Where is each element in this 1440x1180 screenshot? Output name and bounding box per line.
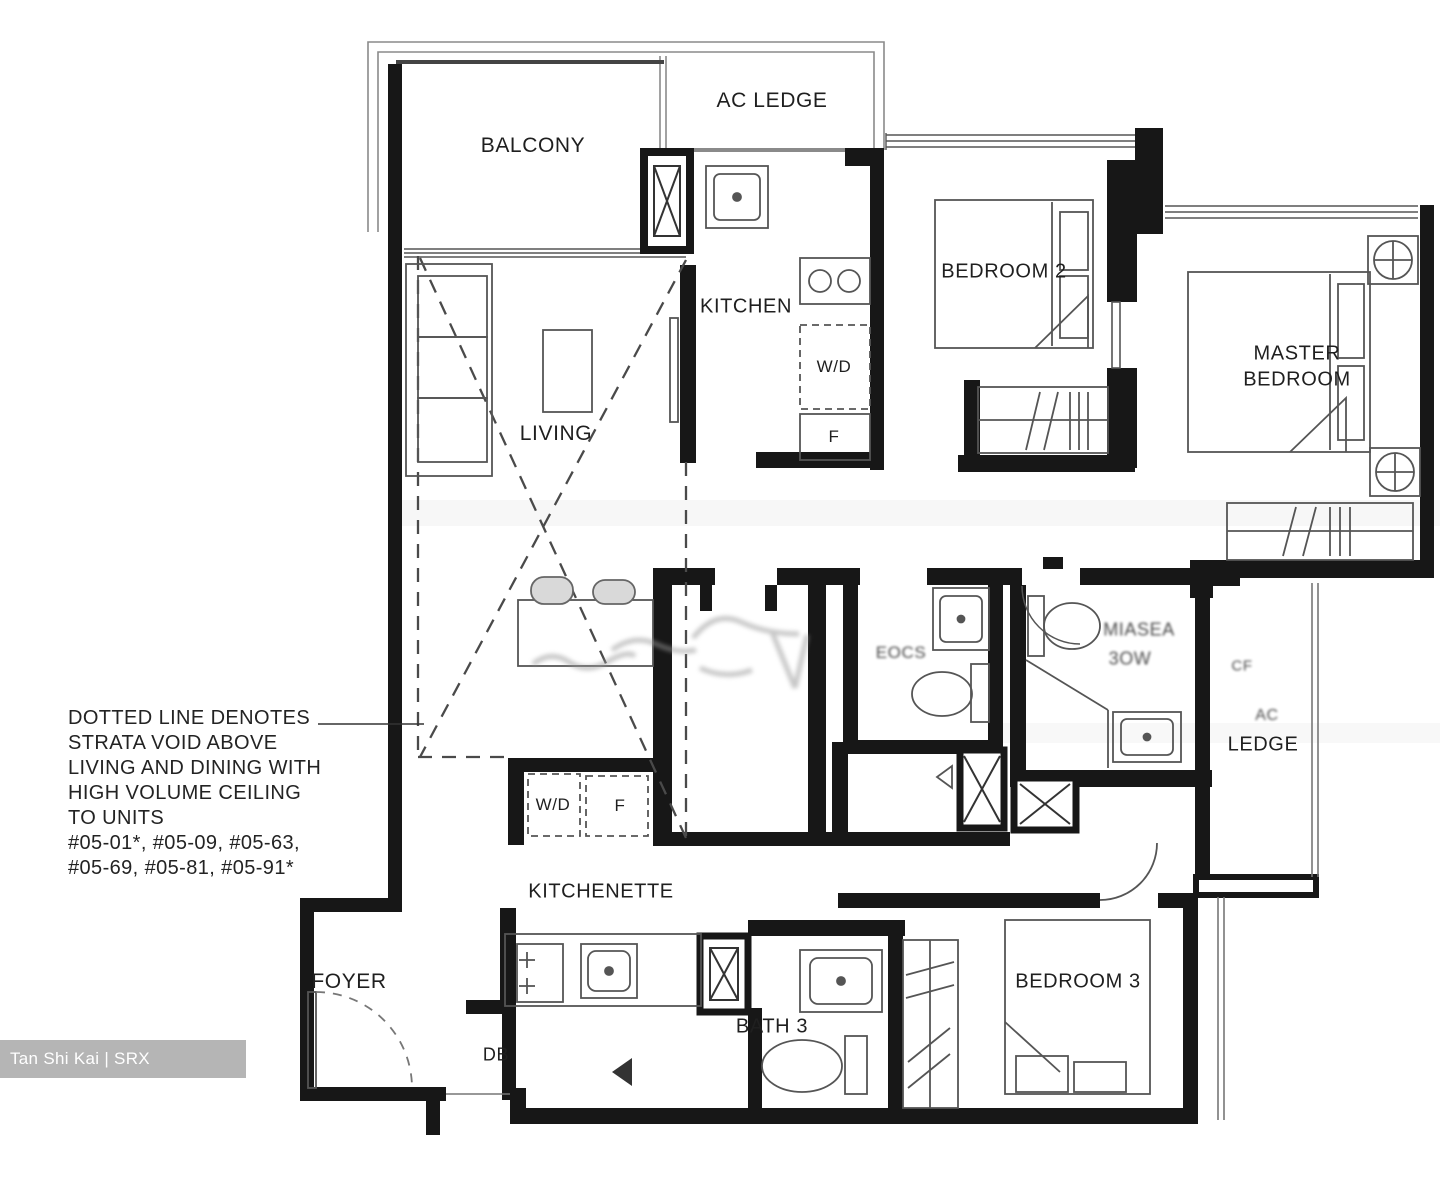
living-furniture [406,264,678,666]
faint-bands [388,500,1440,743]
strata-void-note: DOTTED LINE DENOTES STRATA VOID ABOVE LI… [68,706,368,881]
bedroom2-label: BEDROOM 2 [941,261,1066,284]
bedroom3-label: BEDROOM 3 [1015,971,1140,994]
strata-void-dashed-lines [418,256,686,838]
foyer-label: FOYER [311,970,386,994]
living-label: LIVING [520,422,592,446]
master-bedroom-label-line2: BEDROOM [1243,369,1351,392]
note-line: #05-69, #05-81, #05-91* [68,856,368,881]
walls [300,64,1434,1135]
note-line: LIVING AND DINING WITH [68,756,368,781]
kitchen-label: KITCHEN [700,296,792,319]
master-bedroom-label-line1: MASTER [1254,343,1341,366]
bedroom3-furniture [903,920,1150,1108]
note-line: #05-01*, #05-09, #05-63, [68,831,368,856]
floor-plan: BALCONY AC LEDGE KITCHEN W/D F BEDROOM 2… [0,0,1440,1180]
ledge-cf-mark: CF [1231,658,1252,675]
bedroom2-furniture [935,200,1108,453]
fridge-kitchenette-label: F [615,796,626,816]
agent-watermark: Tan Shi Kai | SRX PROPERTY [0,1040,246,1078]
note-line: HIGH VOLUME CEILING [68,781,368,806]
floor-plan-drawing [0,0,1440,1180]
washer-dryer-kitchenette-label: W/D [536,795,571,815]
kitchenette-label: KITCHENETTE [528,881,674,904]
master-bath-label-line1: MIASEA [1103,620,1175,641]
balcony-label: BALCONY [481,134,586,158]
ledge-ac-mark: AC [1255,707,1278,725]
distribution-board-label: DB [483,1045,509,1066]
note-line: DOTTED LINE DENOTES [68,706,368,731]
fridge-kitchen-label: F [829,427,840,447]
ac-ledge-label: AC LEDGE [717,89,828,113]
washer-dryer-kitchen-label: W/D [817,357,852,377]
outer-frame [368,42,884,232]
bath3-label: BATH 3 [736,1016,808,1039]
ledge-label: LEDGE [1228,734,1299,757]
master-bath-label-line2: 3OW [1109,649,1152,670]
bath2-label: EOCS [876,643,927,663]
note-line: TO UNITS [68,806,368,831]
bedroom2-door [1107,302,1137,368]
note-line: STRATA VOID ABOVE [68,731,368,756]
